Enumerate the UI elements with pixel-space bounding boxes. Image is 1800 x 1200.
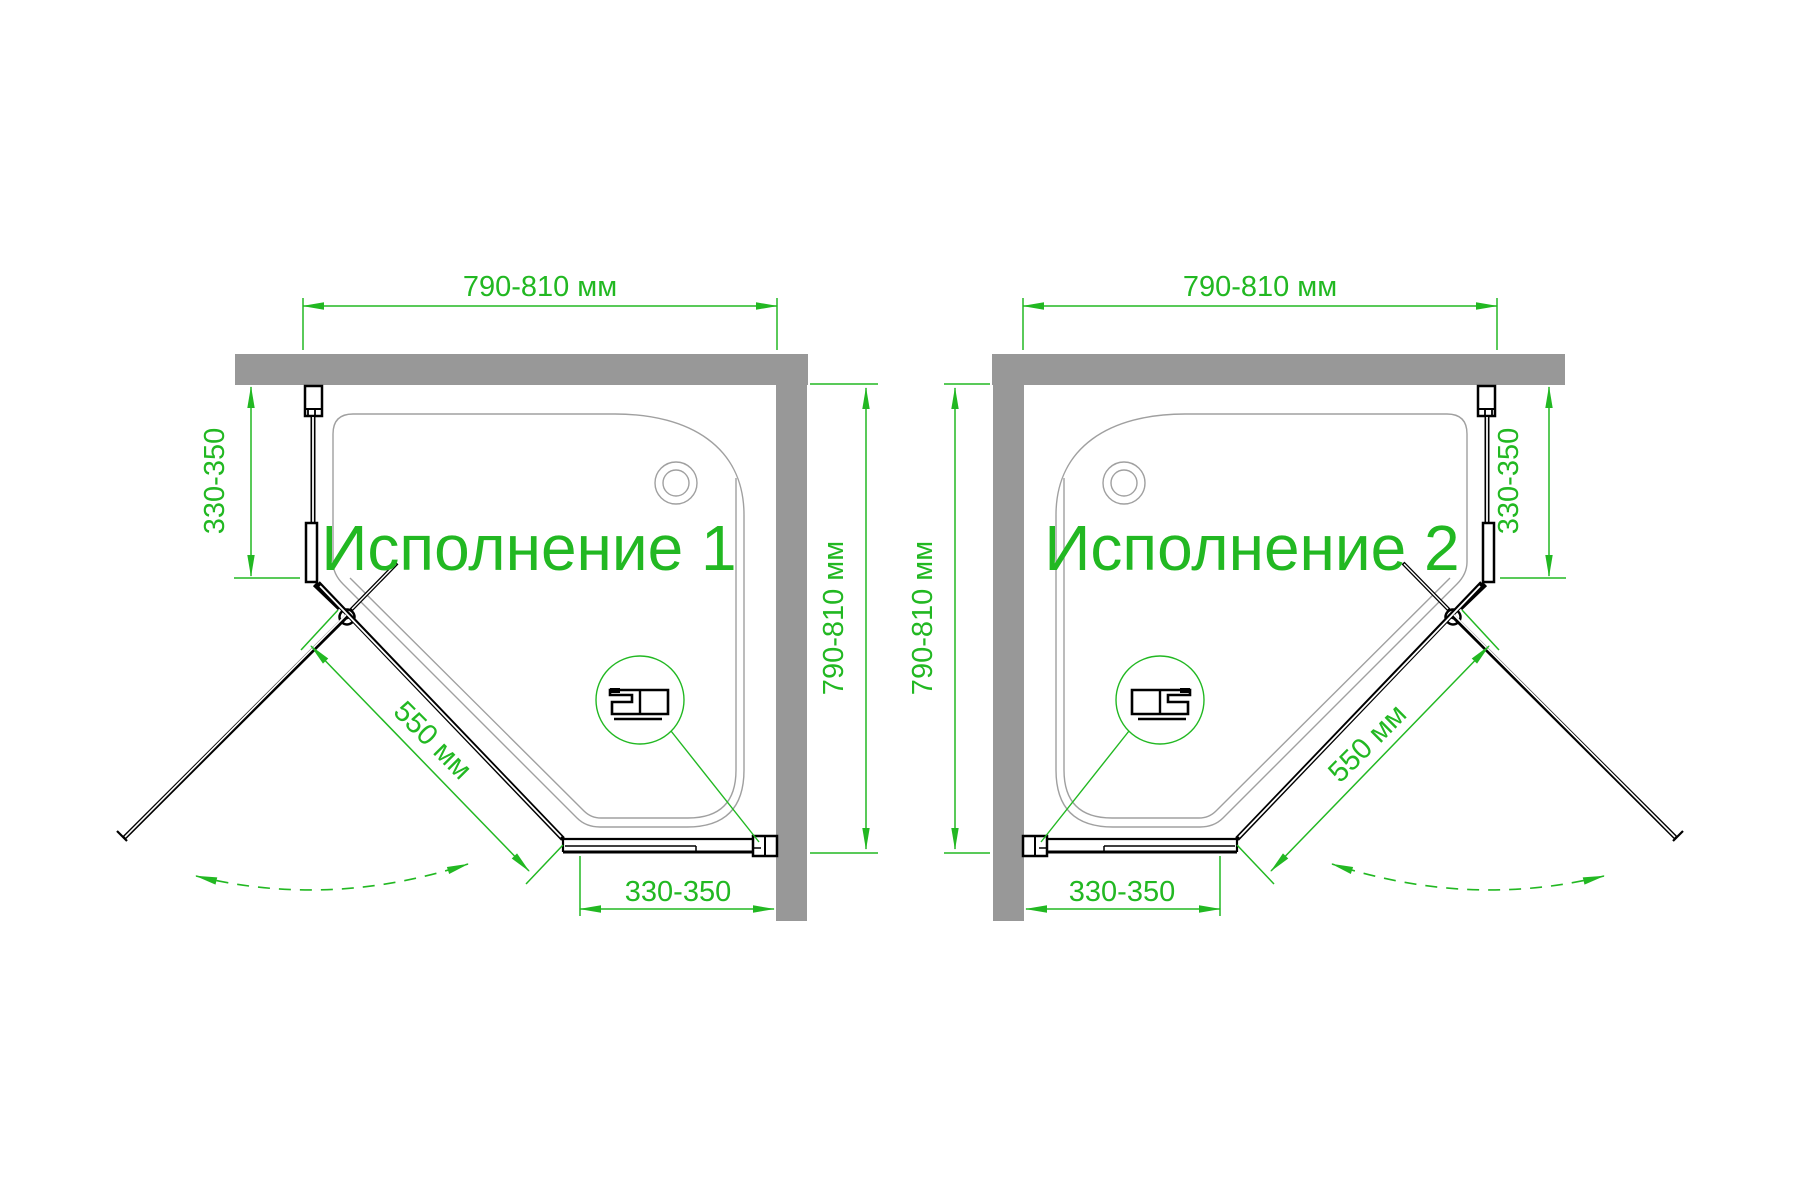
- view-2-dim-depth: 790-810 мм: [907, 541, 939, 695]
- drawing-page: Исполнение 1 790-810 мм 790-810 мм 330-3…: [0, 0, 1800, 1200]
- view-1-dim-width: 790-810 мм: [463, 271, 617, 303]
- view-1-title: Исполнение 1: [321, 512, 736, 584]
- view-1-dim-bottom: 330-350: [625, 876, 731, 908]
- shower-enclosure-plan-drawing: Исполнение 1 790-810 мм 790-810 мм 330-3…: [0, 0, 1800, 1200]
- view-1-dim-depth: 790-810 мм: [818, 541, 850, 695]
- view-2-title: Исполнение 2: [1044, 512, 1459, 584]
- view-2-dim-bottom: 330-350: [1069, 876, 1175, 908]
- paper-background: [0, 0, 1800, 1200]
- view-1-dim-side: 330-350: [199, 428, 231, 534]
- view-2-dim-width: 790-810 мм: [1183, 271, 1337, 303]
- view-2-dim-side: 330-350: [1493, 428, 1525, 534]
